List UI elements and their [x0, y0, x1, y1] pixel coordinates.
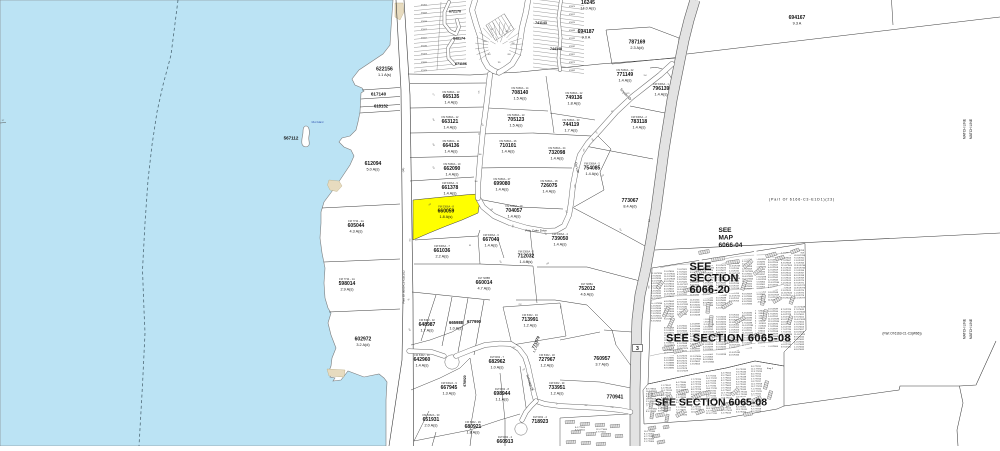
svg-text:1.2 A(s): 1.2 A(s) [523, 323, 537, 327]
svg-text:3.8 674885: 3.8 674885 [664, 368, 675, 370]
svg-text:16245: 16245 [581, 0, 595, 6]
svg-text:672170: 672170 [449, 10, 461, 14]
svg-text:7.5 674238: 7.5 674238 [716, 354, 727, 356]
svg-text:598014: 598014 [339, 281, 356, 287]
svg-text:673657: 673657 [421, 37, 427, 39]
svg-text:765: 765 [498, 62, 501, 64]
svg-text:1.4 A(s): 1.4 A(s) [495, 187, 509, 191]
svg-text:674: 674 [506, 31, 509, 33]
svg-text:1.0 A(s): 1.0 A(s) [449, 326, 463, 330]
svg-text:773067: 773067 [622, 198, 639, 204]
svg-text:760957: 760957 [594, 356, 611, 362]
svg-text:1.8 A(s): 1.8 A(s) [466, 430, 480, 434]
svg-text:567112: 567112 [284, 136, 299, 141]
svg-text:3.9 672741: 3.9 672741 [781, 346, 792, 348]
svg-text:617140: 617140 [371, 92, 387, 97]
svg-text:726075: 726075 [541, 183, 558, 189]
svg-text:673811: 673811 [569, 54, 575, 56]
svg-text:47: 47 [611, 111, 613, 113]
svg-text:121: 121 [627, 93, 630, 95]
svg-text:1.4 A(s): 1.4 A(s) [507, 214, 521, 218]
svg-text:833: 833 [508, 54, 511, 56]
svg-text:89: 89 [469, 245, 471, 247]
svg-text:602972: 602972 [355, 337, 372, 343]
svg-text:216: 216 [611, 407, 614, 409]
svg-text:10.1 670777: 10.1 670777 [794, 298, 806, 300]
svg-text:2.9 A(s): 2.9 A(s) [340, 287, 354, 291]
svg-text:1.4 A(s): 1.4 A(s) [444, 100, 458, 104]
svg-text:5.4 775016: 5.4 775016 [721, 412, 732, 414]
svg-text:679674: 679674 [569, 6, 575, 8]
svg-text:679863: 679863 [569, 70, 575, 72]
svg-text:694187: 694187 [578, 29, 595, 35]
svg-text:SEE: SEE [690, 261, 712, 273]
svg-text:671679: 671679 [421, 54, 427, 56]
svg-text:694167: 694167 [789, 15, 806, 21]
svg-text:670520: 670520 [569, 22, 575, 24]
svg-text:11.3 771741: 11.3 771741 [706, 413, 718, 415]
svg-text:710101: 710101 [500, 143, 517, 149]
svg-text:749136: 749136 [566, 95, 583, 101]
svg-text:752012: 752012 [579, 286, 596, 292]
svg-text:642960: 642960 [414, 357, 431, 363]
svg-text:1.8 A(s): 1.8 A(s) [439, 215, 453, 219]
svg-text:9.3 A: 9.3 A [793, 21, 802, 25]
svg-text:677990: 677990 [467, 319, 482, 324]
svg-text:664136: 664136 [443, 143, 460, 149]
svg-text:712032: 712032 [518, 254, 535, 260]
svg-text:MAP: MAP [719, 235, 734, 242]
svg-text:2.2 A(s): 2.2 A(s) [435, 254, 449, 258]
svg-text:194: 194 [644, 75, 647, 77]
svg-text:4.3 A(s): 4.3 A(s) [349, 229, 363, 233]
svg-text:Mud Island: Mud Island [312, 121, 324, 124]
svg-text:9.0 A: 9.0 A [582, 35, 591, 39]
svg-text:1.4 A(s): 1.4 A(s) [443, 191, 457, 195]
svg-text:1.6 673333: 1.6 673333 [742, 304, 753, 306]
svg-text:670409: 670409 [421, 13, 427, 15]
svg-text:732098: 732098 [549, 150, 566, 156]
svg-text:744119: 744119 [563, 122, 580, 128]
svg-text:10.9 674305: 10.9 674305 [703, 361, 715, 363]
svg-text:648987: 648987 [419, 322, 436, 328]
svg-text:1.4 A(s): 1.4 A(s) [542, 189, 556, 193]
svg-text:741143: 741143 [535, 21, 547, 25]
svg-text:9.3 673253: 9.3 673253 [651, 321, 662, 323]
svg-text:9.8 673522: 9.8 673522 [781, 297, 792, 299]
svg-text:4.6 A(s): 4.6 A(s) [580, 292, 594, 296]
svg-text:3: 3 [636, 346, 639, 352]
svg-text:MATCH LINE: MATCH LINE [963, 118, 967, 139]
svg-text:671106: 671106 [455, 62, 467, 66]
svg-text:663121: 663121 [442, 119, 459, 125]
svg-text:1.4 A(s): 1.4 A(s) [444, 149, 458, 153]
svg-text:661378: 661378 [442, 185, 459, 191]
svg-text:MATCH LINE: MATCH LINE [969, 318, 973, 339]
svg-text:713991: 713991 [522, 317, 539, 323]
svg-text:1.4 A(s): 1.4 A(s) [585, 172, 599, 176]
svg-text:705123: 705123 [508, 117, 525, 123]
svg-text:6066-04: 6066-04 [719, 242, 743, 249]
svg-text:622156: 622156 [376, 67, 393, 73]
svg-text:678935: 678935 [421, 62, 427, 64]
svg-text:339: 339 [647, 286, 649, 289]
svg-text:1.1 A(s): 1.1 A(s) [378, 73, 392, 77]
svg-text:744148: 744148 [550, 47, 562, 51]
svg-text:1.4 A(s): 1.4 A(s) [654, 92, 668, 96]
svg-text:1.0 A(s): 1.0 A(s) [490, 365, 504, 369]
svg-text:(Part Of 6166-C3-E1D1)(23): (Part Of 6166-C3-E1D1)(23) [769, 198, 835, 202]
svg-text:1.4 A(s): 1.4 A(s) [550, 156, 564, 160]
svg-text:4.6 675166: 4.6 675166 [729, 355, 740, 357]
svg-text:127: 127 [491, 29, 494, 31]
svg-text:658: 658 [512, 43, 515, 45]
svg-text:360: 360 [479, 154, 482, 156]
svg-text:727967: 727967 [539, 357, 556, 363]
svg-text:672286: 672286 [421, 46, 427, 48]
svg-text:2.0 A(s): 2.0 A(s) [424, 423, 438, 427]
svg-text:1.4 A(s): 1.4 A(s) [501, 149, 515, 153]
svg-text:651931: 651931 [423, 417, 440, 423]
svg-text:SEE: SEE [719, 227, 733, 234]
svg-text:1.2 A(s): 1.2 A(s) [550, 391, 564, 395]
svg-text:667945: 667945 [441, 385, 458, 391]
svg-text:665988: 665988 [449, 320, 464, 325]
svg-text:661036: 661036 [434, 248, 451, 254]
svg-text:783118: 783118 [631, 119, 648, 125]
svg-text:SEE SECTION 6065-08: SEE SECTION 6065-08 [666, 333, 791, 345]
svg-text:287: 287 [585, 405, 588, 407]
svg-text:4.7 A(s): 4.7 A(s) [477, 286, 491, 290]
svg-text:678920: 678920 [463, 375, 467, 386]
svg-text:158: 158 [582, 149, 584, 152]
svg-text:948174: 948174 [453, 37, 465, 41]
svg-text:2.3 A(d): 2.3 A(d) [630, 46, 644, 50]
svg-text:3: 3 [648, 219, 650, 223]
svg-text:1.4 A(s): 1.4 A(s) [618, 78, 632, 82]
svg-text:243: 243 [573, 185, 575, 188]
svg-text:698944: 698944 [494, 391, 511, 397]
svg-text:1.4 A(s): 1.4 A(s) [484, 243, 498, 247]
svg-text:699080: 699080 [494, 181, 511, 187]
svg-text:5.1 772404: 5.1 772404 [644, 441, 655, 443]
svg-text:771149: 771149 [617, 72, 634, 78]
svg-text:682962: 682962 [489, 359, 506, 365]
svg-text:3.7 A(d): 3.7 A(d) [595, 362, 609, 366]
svg-text:676912: 676912 [569, 14, 575, 16]
svg-text:207: 207 [513, 347, 516, 349]
svg-text:1.5 A(s): 1.5 A(s) [513, 96, 527, 100]
svg-text:1.4 A(s): 1.4 A(s) [445, 172, 459, 176]
svg-text:787169: 787169 [629, 40, 646, 46]
svg-text:667040: 667040 [483, 237, 500, 243]
svg-text:605044: 605044 [348, 223, 365, 229]
svg-text:1.2 A(s): 1.2 A(s) [540, 363, 554, 367]
svg-text:303: 303 [488, 54, 491, 56]
svg-text:3.2 A(d): 3.2 A(d) [356, 343, 370, 347]
svg-text:671424: 671424 [421, 70, 427, 72]
svg-text:SECTION: SECTION [690, 273, 739, 285]
svg-text:350: 350 [475, 181, 478, 183]
svg-text:(Part Of 6163-C1-C3(W66)): (Part Of 6163-C1-C3(W66)) [882, 332, 921, 336]
svg-text:4.7 771601: 4.7 771601 [596, 432, 607, 434]
svg-text:673582: 673582 [569, 46, 575, 48]
svg-text:1.4 A(s): 1.4 A(s) [443, 125, 457, 129]
svg-text:6.8 772603: 6.8 772603 [658, 411, 669, 413]
svg-text:733951: 733951 [549, 385, 566, 391]
svg-text:MATCH LINE: MATCH LINE [969, 118, 973, 139]
svg-text:14.0 A(s): 14.0 A(s) [580, 6, 596, 10]
svg-text:671535: 671535 [569, 38, 575, 40]
svg-text:660059: 660059 [438, 209, 455, 215]
svg-text:(1/1): (1/1) [403, 167, 405, 172]
svg-text:161: 161 [477, 91, 479, 94]
svg-text:MATCH LINE: MATCH LINE [963, 318, 967, 339]
svg-text:718923: 718923 [532, 419, 549, 425]
svg-text:678279: 678279 [569, 62, 575, 64]
svg-text:1.7 A(s): 1.7 A(s) [564, 128, 578, 132]
svg-text:674506: 674506 [421, 21, 427, 23]
svg-text:212: 212 [519, 304, 522, 306]
svg-text:7.9 672604: 7.9 672604 [768, 346, 779, 348]
svg-text:770941: 770941 [607, 395, 624, 401]
svg-text:1.8 A(s): 1.8 A(s) [567, 101, 581, 105]
svg-text:1.4 A(s): 1.4 A(s) [553, 242, 567, 246]
svg-text:1.7 A(s): 1.7 A(s) [420, 328, 434, 332]
svg-text:1.3 673003: 1.3 673003 [690, 363, 701, 365]
svg-text:674012: 674012 [421, 29, 427, 31]
svg-text:708140: 708140 [512, 90, 529, 96]
svg-text:8.4 A(d): 8.4 A(d) [623, 204, 637, 208]
svg-text:670488: 670488 [569, 30, 575, 32]
svg-text:9.9 773729: 9.9 773729 [751, 411, 762, 413]
svg-text:680921: 680921 [465, 424, 482, 430]
svg-text:SEE SECTION 6065-08: SEE SECTION 6065-08 [655, 397, 767, 409]
svg-text:618132: 618132 [374, 104, 389, 109]
svg-text:665135: 665135 [443, 94, 460, 100]
svg-text:1.3 A(s): 1.3 A(s) [442, 391, 456, 395]
svg-text:754085: 754085 [584, 166, 601, 172]
svg-text:6066-20: 6066-20 [690, 284, 730, 296]
svg-text:6.7 771501: 6.7 771501 [575, 430, 586, 432]
svg-text:660014: 660014 [476, 280, 493, 286]
svg-text:660913: 660913 [497, 439, 514, 445]
svg-text:1.4 A(s): 1.4 A(s) [415, 363, 429, 367]
svg-text:5.0 A(s): 5.0 A(s) [366, 167, 380, 171]
svg-text:796139: 796139 [653, 86, 670, 92]
svg-text:1.4 A(s): 1.4 A(s) [632, 125, 646, 129]
svg-text:183: 183 [559, 306, 561, 309]
svg-text:322: 322 [511, 225, 513, 228]
svg-text:250: 250 [408, 239, 410, 242]
svg-text:1.5 A(s): 1.5 A(s) [509, 123, 523, 127]
svg-text:12.5 671579: 12.5 671579 [677, 371, 689, 373]
svg-text:4.6 674248: 4.6 674248 [690, 314, 701, 316]
svg-text:704057: 704057 [506, 208, 523, 214]
svg-text:King 2: King 2 [767, 368, 774, 370]
svg-text:739050: 739050 [552, 236, 569, 242]
svg-text:4.8 671065: 4.8 671065 [794, 349, 805, 351]
svg-text:1.1 A(s): 1.1 A(s) [495, 397, 509, 401]
svg-text:612094: 612094 [365, 161, 382, 167]
svg-text:Part Of 6065-C2-G2(1/1): Part Of 6065-C2-G2(1/1) [402, 270, 406, 303]
svg-text:185: 185 [532, 389, 535, 391]
svg-text:818: 818 [484, 41, 487, 43]
svg-text:671824: 671824 [421, 5, 427, 7]
svg-text:662090: 662090 [444, 166, 461, 172]
